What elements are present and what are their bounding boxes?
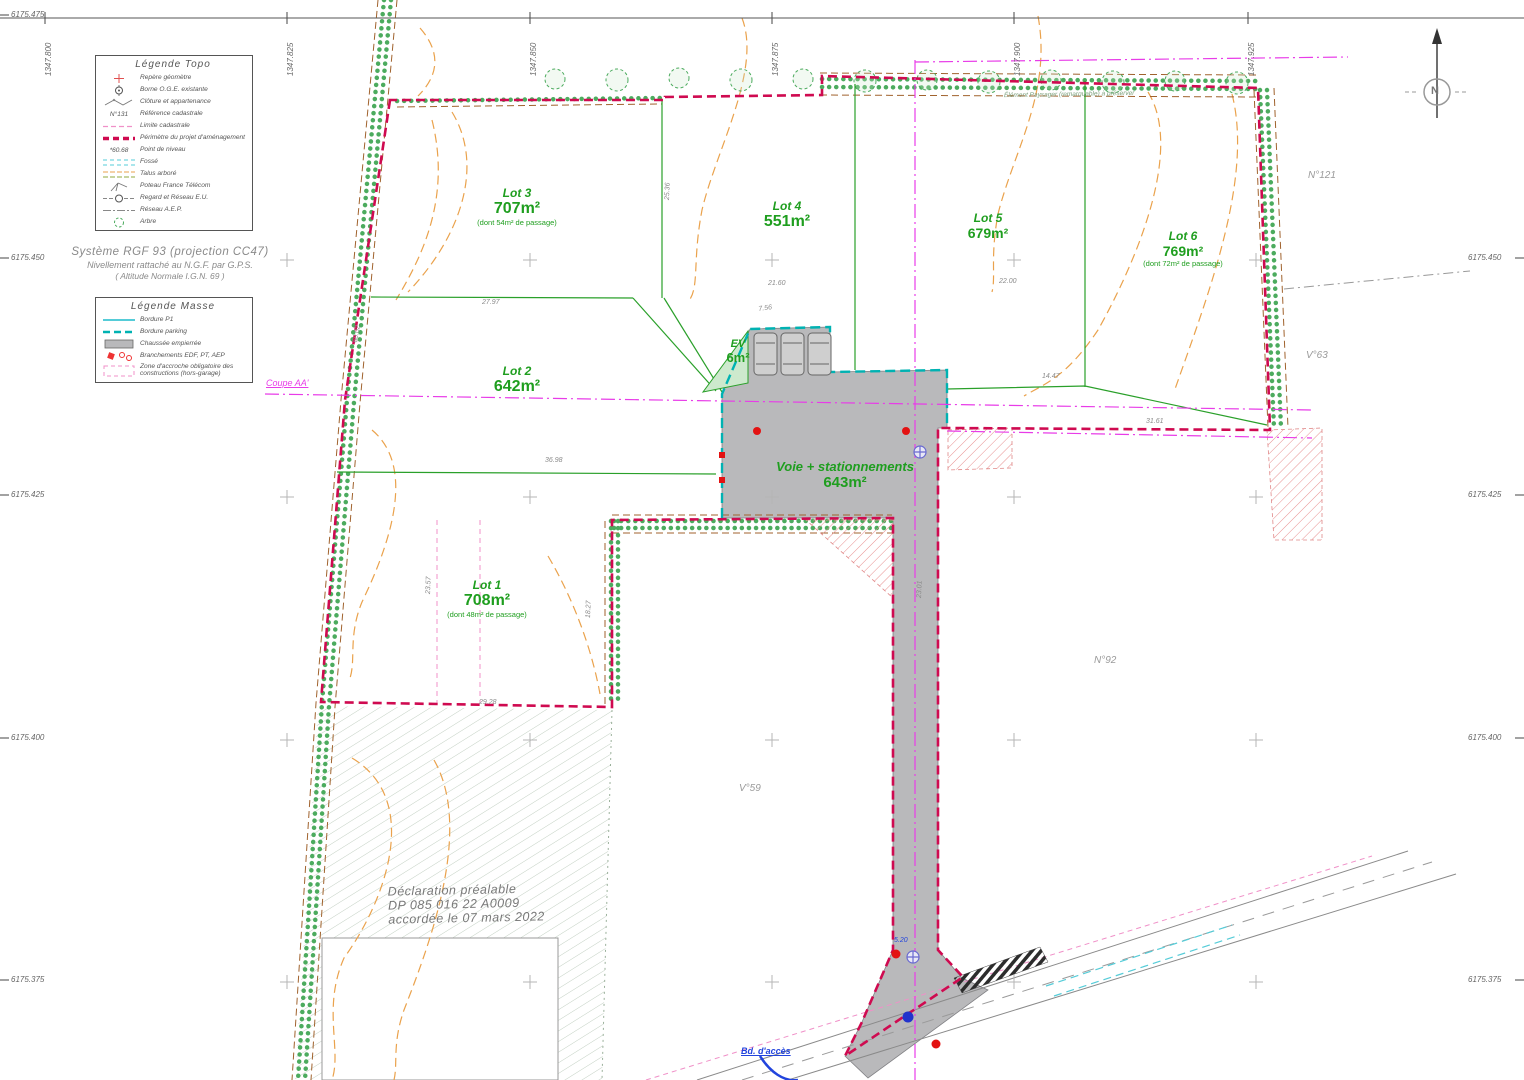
level-point-value: 60.68 [112,147,128,154]
lot4-label: Lot 4 551m² [764,199,810,231]
access-label: Bd. d'accès [741,1046,791,1056]
grid-y-label: 6175.450 [1468,253,1501,262]
legend-item: Fossé [98,156,248,168]
legend-item: * 60.68 Point de niveau [98,144,248,156]
legend-item: Réseau A.E.P. [98,204,248,216]
legend-item-label: Bordure P1 [140,317,173,324]
legend-masse: Légende Masse Bordure P1 Bordure parking… [95,297,253,383]
legend-item-label: Fossé [140,159,158,166]
north-letter: N [1431,85,1439,97]
boundary-stone-icon [98,85,140,96]
parcel-ref-v63: V°63 [1306,350,1328,361]
manhole-network-icon [98,193,140,204]
lot-area: 642m² [494,378,540,396]
projection-system: Système RGF 93 (projection CC47) [70,246,270,258]
legend-item-label: Limite cadastrale [140,123,190,130]
legend-item: Bordure parking [98,326,248,338]
building-plot-rect [322,938,558,1080]
water-network-icon [98,205,140,216]
legend-item-label: Borne O.G.E. existante [140,87,208,94]
survey-plan-sheet: 1347.800 1347.825 1347.850 1347.875 1347… [0,0,1524,1080]
lot-area: 707m² [477,200,557,218]
dimension-label: 25.36 [664,182,672,200]
legend-item-label: Poteau France Télécom [140,183,210,190]
fence-icon [98,97,140,108]
lot-note: (dont 72m² de passage) [1143,259,1223,268]
lot-area: 708m² [447,592,527,610]
legend-item: Limite cadastrale [98,120,248,132]
cadastral-limit-icon [98,121,140,132]
legend-item-label: Zone d'accroche obligatoire des construc… [140,364,240,378]
lot5-label: Lot 5 679m² [968,211,1008,241]
legend-item: Clôture et appartenance [98,96,248,108]
legend-item: Poteau France Télécom [98,180,248,192]
lot-area: 551m² [764,213,810,231]
section-label: Coupe AA' [266,378,308,388]
north-arrow [1405,28,1469,118]
lot-area: 679m² [968,225,1008,241]
attachment-zone-icon [98,364,140,378]
legend-item: Talus arboré [98,168,248,180]
legend-masse-title: Légende Masse [98,301,248,312]
levelling-note: Nivellement rattaché au N.G.F. par G.P.S… [70,260,270,270]
dimension-label: 14.47 [1042,373,1060,380]
lot-name: Lot 3 [477,186,557,200]
grid-x-label: 1347.800 [44,43,53,76]
dimension-label: 23.57 [425,576,433,594]
legend-item: Chaussée empierrée [98,338,248,350]
legend-item-label: Talus arboré [140,171,176,178]
legend-item: Bordure P1 [98,314,248,326]
lot-name: Lot 2 [494,364,540,378]
dimension-label: 22.00 [999,278,1017,285]
slope-icon [98,169,140,180]
legend-item-label: Chaussée empierrée [140,341,201,348]
dimension-label: 18.27 [585,600,593,618]
legend-item: Branchements EDF, PT, AEP [98,350,248,362]
grid-y-label: 6175.400 [1468,733,1501,742]
parking-kerb-icon [98,326,140,338]
road-name: Voie + stationnements [776,459,914,474]
lot-name: Lot 5 [968,211,1008,225]
lot-name: Lot 4 [764,199,810,213]
legend-item: Arbre [98,216,248,228]
ev-name: EV [726,338,749,350]
parcel-ref-v59: V°59 [739,783,761,794]
grid-y-label: 6175.375 [11,975,44,984]
grid-x-label: 1347.825 [286,43,295,76]
legend-item-label: Point de niveau [140,147,185,154]
grid-x-label: 1347.875 [771,43,780,76]
tree-icon [98,217,140,228]
grid-y-label: 6175.475 [11,10,44,19]
declaration-block: Déclaration préalable DP 085 016 22 A000… [388,882,545,927]
legend-item-label: Branchements EDF, PT, AEP [140,353,225,360]
telecom-pole-icon [98,181,140,192]
legend-item: Repère géomètre [98,72,248,84]
lot-note: (dont 54m² de passage) [477,218,557,227]
grid-y-label: 6175.425 [11,490,44,499]
gravel-road-icon [98,338,140,350]
legend-item: Périmètre du projet d'aménagement [98,132,248,144]
cadastral-ref-sample: N°131 [98,111,140,118]
cars [754,333,831,375]
road-label: Voie + stationnements 643m² [776,459,914,491]
legend-item: N°131 Référence cadastrale [98,108,248,120]
grid-x-label: 1347.900 [1013,43,1022,76]
survey-mark-icon [98,73,140,84]
dimension-label: 27.97 [482,299,500,306]
ev-label: EV 6m² [726,338,749,365]
perimeter-icon [98,133,140,144]
lot3-label: Lot 3 707m² (dont 54m² de passage) [477,186,557,227]
lot-name: Lot 1 [447,578,527,592]
legend-item: Borne O.G.E. existante [98,84,248,96]
legend-topo: Légende Topo Repère géomètre Borne O.G.E… [95,55,253,231]
legend-item-label: Clôture et appartenance [140,99,211,106]
legend-item-label: Périmètre du projet d'aménagement [140,135,245,142]
legend-item: Zone d'accroche obligatoire des construc… [98,362,248,380]
service-connections-icon [98,350,140,362]
ditch-icon [98,157,140,168]
road-area: 643m² [776,474,914,491]
lot-area: 769m² [1143,243,1223,259]
parcel-ref-n92: N°92 [1094,655,1116,666]
grid-y-label: 6175.450 [11,253,44,262]
parcel-ref-n121: N°121 [1308,170,1336,181]
dimension-label: 5.20 [894,937,908,944]
legend-item-label: Arbre [140,219,156,226]
grid-y-label: 6175.400 [11,733,44,742]
grid-x-label: 1347.850 [529,43,538,76]
kerb-p1-icon [98,314,140,326]
legend-item-label: Repère géomètre [140,75,191,82]
legend-topo-title: Légende Topo [98,59,248,70]
dimension-label: 36.98 [545,457,563,464]
altitude-note: ( Altitude Normale I.G.N. 69 ) [70,271,270,281]
ev-area-value: 6m² [726,350,749,365]
lot2-label: Lot 2 642m² [494,364,540,396]
legend-item-label: Référence cadastrale [140,111,203,118]
legend-item: Regard et Réseau E.U. [98,192,248,204]
datum-block: Système RGF 93 (projection CC47) Nivelle… [70,246,270,281]
legend-item-label: Réseau A.E.P. [140,207,182,214]
dimension-label: 21.60 [768,280,786,287]
access-arrow [760,1056,798,1080]
level-point-sample: * 60.68 [98,147,140,154]
legend-item-label: Bordure parking [140,329,187,336]
dimension-label: 31.61 [1146,418,1164,425]
lot-note: (dont 48m² de passage) [447,610,527,619]
legend-item-label: Regard et Réseau E.U. [140,195,208,202]
lot1-label: Lot 1 708m² (dont 48m² de passage) [447,578,527,619]
crosswalk-strip [954,947,1048,993]
lot6-label: Lot 6 769m² (dont 72m² de passage) [1143,229,1223,268]
grid-y-label: 6175.425 [1468,490,1501,499]
dimension-label: 29.28 [479,699,497,706]
grid-x-label: 1347.925 [1247,43,1256,76]
dimension-label: 23.01 [916,580,924,598]
lot-name: Lot 6 [1143,229,1223,243]
grid-y-label: 6175.375 [1468,975,1501,984]
